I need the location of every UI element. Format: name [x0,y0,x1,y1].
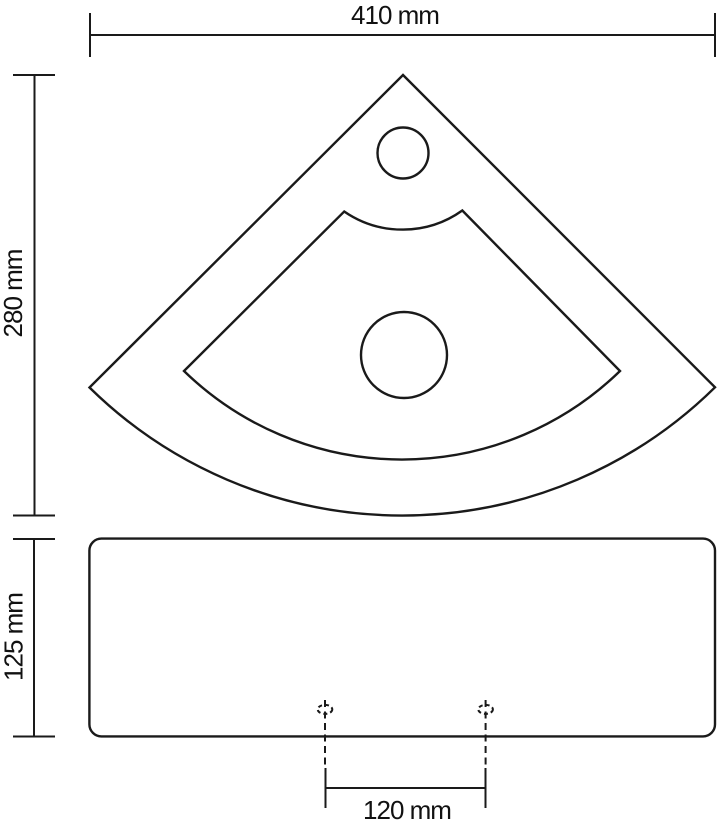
svg-text:120 mm: 120 mm [363,795,451,823]
svg-text:410 mm: 410 mm [351,0,439,30]
svg-text:280 mm: 280 mm [0,250,28,338]
svg-text:125 mm: 125 mm [0,593,29,681]
